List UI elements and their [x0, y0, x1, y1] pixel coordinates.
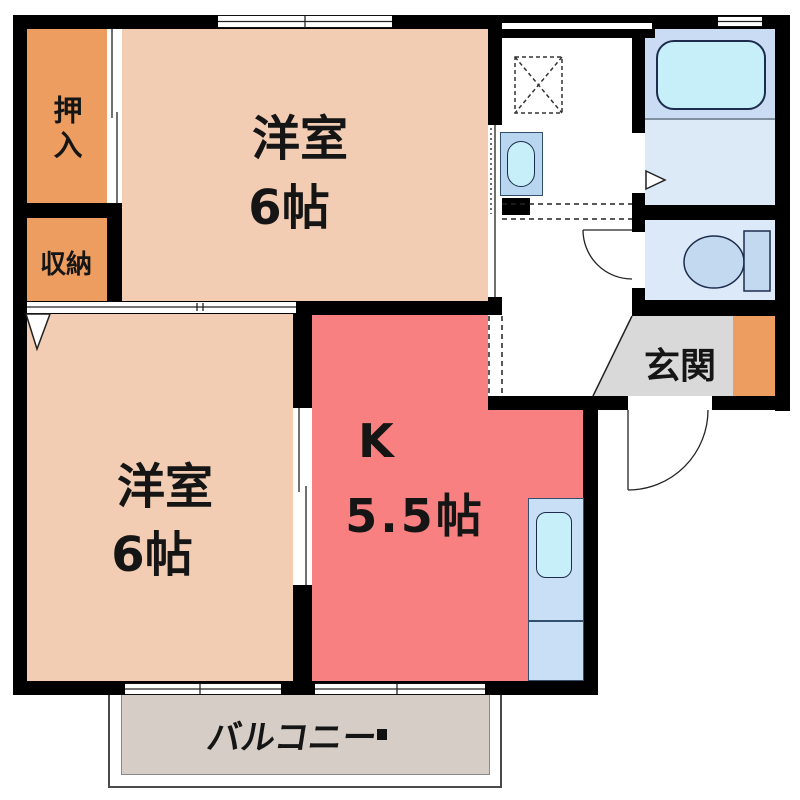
wall-room2-kitchen-lower [293, 585, 312, 681]
wall-room2-kitchen-upper [293, 314, 312, 408]
window-balcony-right [315, 683, 485, 695]
bathtub-icon [656, 40, 766, 110]
wall-storage-right [107, 203, 122, 302]
storage-closet-label: 収納 [25, 246, 107, 278]
toilet-room-floor [645, 220, 775, 300]
sliding-doors-between-rooms [27, 302, 296, 313]
wall-toilet-west-lower [632, 288, 645, 300]
vent-washroom-top [502, 23, 652, 29]
wall-room1-kitchen [296, 301, 488, 315]
kitchen-floor-upper [312, 315, 488, 410]
western-room-bottom-label: 洋室 [35, 455, 295, 509]
wall-kitchen-right [583, 410, 598, 695]
wall-top [13, 15, 790, 29]
kitchen-size: 5.5帖 [300, 485, 530, 540]
wall-toilet-bottom [632, 300, 790, 316]
western-room-top-label: 洋室 [170, 107, 430, 161]
door-gap-toilet [632, 232, 645, 288]
window-bath-top [718, 16, 762, 27]
wall-hall-south-west [488, 396, 628, 410]
wall-room1-east-lower [488, 297, 502, 315]
kitchen-sink-divider [529, 620, 583, 622]
wall-toilet-west-upper [632, 220, 645, 232]
door-gap-entrance [628, 397, 712, 409]
window-balcony-left [125, 683, 281, 695]
floor-plan: 押入 収納 洋室 6帖 洋室 6帖 K 5.5帖 玄関 バルコニー [0, 0, 800, 800]
wall-basin-stub [500, 198, 530, 215]
kitchen-sink-icon [536, 512, 572, 578]
window-room1-top [218, 15, 392, 28]
washing-machine-icon [515, 57, 562, 113]
entrance-label: 玄関 [615, 341, 745, 385]
balcony-label: バルコニー [116, 711, 468, 757]
western-room-bottom-size: 6帖 [32, 521, 272, 579]
kitchen-label: K [312, 413, 440, 469]
sliding-door-oshiire [107, 29, 122, 203]
bathroom-lower-floor [645, 118, 775, 205]
wall-hall-south-east [712, 396, 790, 410]
wall-left [13, 15, 27, 695]
entrance-door-swing-icon [628, 410, 708, 490]
oshiire-closet-label: 押入 [44, 78, 88, 182]
wall-bath-toilet [632, 205, 790, 220]
toilet-door-swing-icon [583, 230, 632, 279]
wall-room1-east-upper [488, 29, 502, 125]
wall-bottom [13, 681, 598, 695]
open-boundary-hall-kitchen [489, 316, 502, 396]
wall-washroom-bath-lower [632, 193, 645, 205]
washbasin-icon [507, 141, 535, 187]
western-room-top-size: 6帖 [168, 174, 410, 232]
door-gap-bathroom [632, 133, 645, 193]
wall-washroom-bath-upper [632, 29, 645, 133]
